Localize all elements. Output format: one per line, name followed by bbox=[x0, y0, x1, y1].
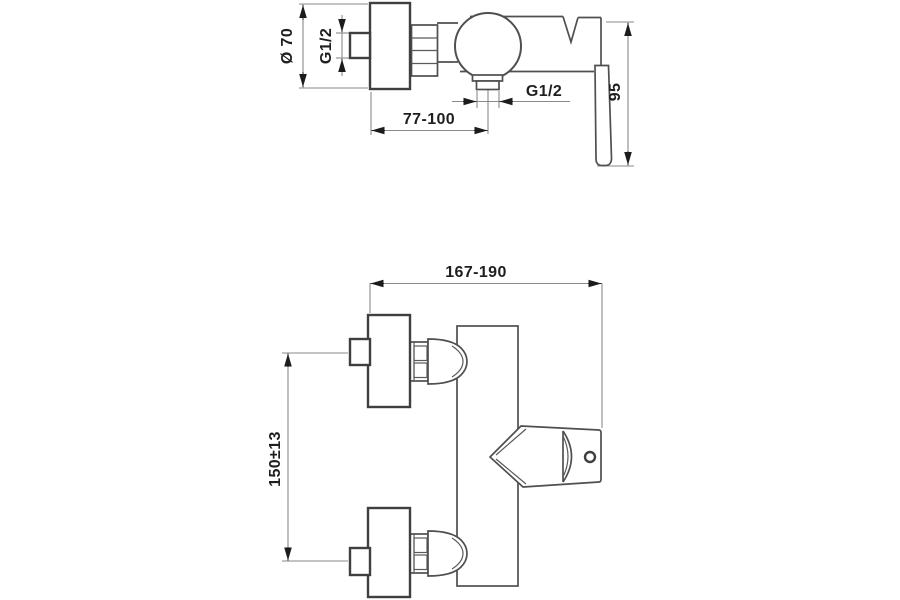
valve-body-circle bbox=[455, 13, 521, 79]
front-view: 167-190 150±13 bbox=[267, 264, 602, 597]
bottom-wall-union bbox=[410, 531, 467, 576]
front-view-fixture bbox=[350, 315, 601, 597]
dim-label-inlet-spacing: 150±13 bbox=[267, 431, 284, 487]
wall-flange-bottom-front bbox=[368, 508, 410, 597]
front-view-arrows bbox=[288, 284, 602, 561]
technical-drawing-page: Ø 70 G1/2 G1/2 77-100 95 bbox=[0, 0, 900, 600]
eccentric-connector bbox=[412, 25, 438, 76]
side-view: Ø 70 G1/2 G1/2 77-100 95 bbox=[279, 3, 634, 166]
dim-label-outlet-distance: 77-100 bbox=[403, 111, 455, 128]
shower-outlet bbox=[473, 75, 503, 90]
dim-label-handle-length: 95 bbox=[607, 83, 624, 102]
handle-hub-cap bbox=[563, 17, 601, 68]
top-wall-union bbox=[410, 339, 467, 384]
dim-label-overall-width: 167-190 bbox=[445, 264, 507, 281]
dim-label-flange-diameter: Ø 70 bbox=[279, 28, 296, 64]
dim-label-inlet-thread: G1/2 bbox=[318, 28, 335, 64]
front-view-dimension-lines bbox=[282, 284, 602, 562]
side-view-fixture bbox=[350, 3, 612, 166]
inlet-fitting-top-front bbox=[350, 339, 370, 365]
inlet-fitting-side bbox=[350, 33, 370, 58]
inlet-fitting-bottom-front bbox=[350, 548, 370, 575]
wall-flange-top-front bbox=[368, 315, 410, 407]
handle-lever-side bbox=[595, 66, 612, 166]
wall-flange-side bbox=[370, 3, 410, 89]
shower-mixer-dimension-drawing: Ø 70 G1/2 G1/2 77-100 95 bbox=[0, 0, 900, 600]
handle-screw-hole bbox=[585, 452, 595, 462]
dim-label-outlet-thread: G1/2 bbox=[526, 83, 562, 100]
